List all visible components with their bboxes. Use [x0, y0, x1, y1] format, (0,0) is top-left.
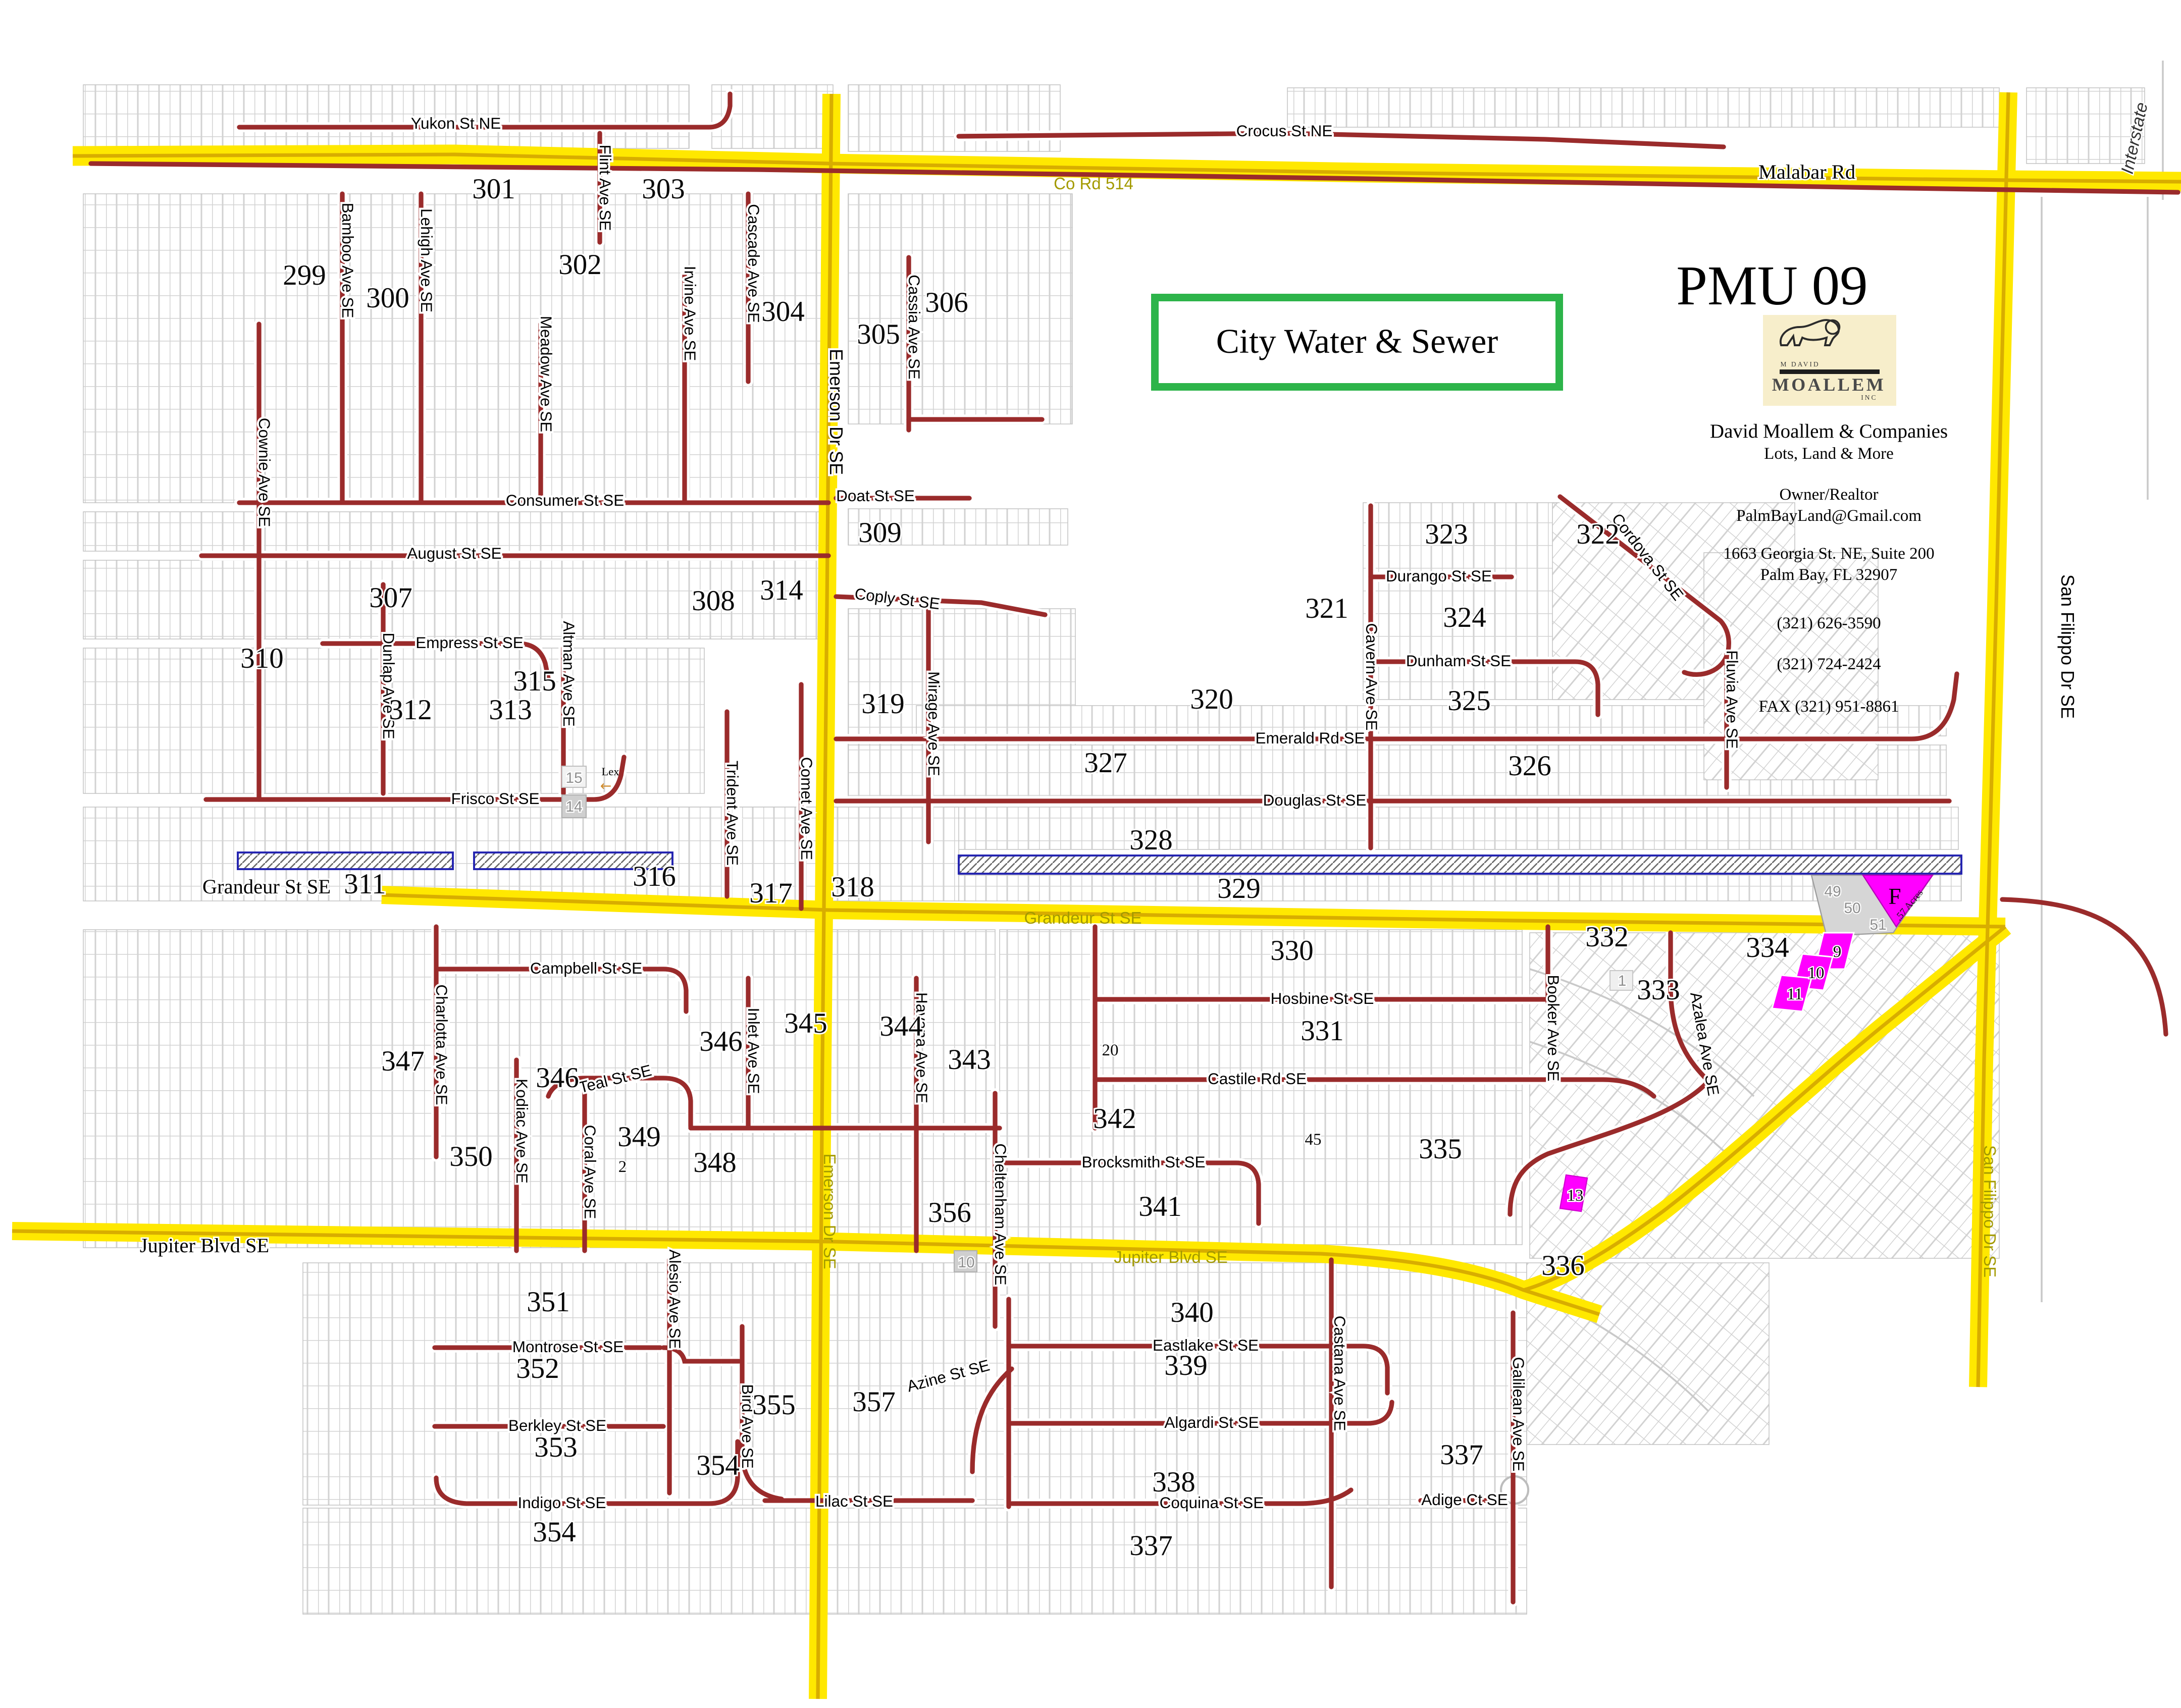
road-label-emerson: Emerson Dr SE [820, 1153, 839, 1269]
street-label-mirage: Mirage Ave SE [925, 671, 943, 776]
map-label: 49 [1824, 883, 1841, 900]
street-label-comet: Comet Ave SE [798, 757, 816, 860]
lex-arrow-icon: ← [600, 778, 612, 794]
section-number-339: 339 [1164, 1350, 1208, 1381]
road-label-malabar: Malabar Rd [1758, 161, 1855, 183]
section-number-332: 332 [1585, 921, 1629, 953]
street-label-cownie: Cownie Ave SE [255, 418, 274, 527]
company-tagline: Lots, Land & More [1666, 445, 1992, 463]
street-label-adige: Adige Ct SE [1421, 1490, 1508, 1509]
lion-icon [1762, 315, 1853, 354]
road-label-san-filippo: San Filippo Dr SE [1981, 1145, 1999, 1277]
section-number-311: 311 [344, 868, 386, 900]
section-number-328: 328 [1129, 824, 1173, 856]
section-number-356: 356 [928, 1197, 971, 1229]
street-label-charlotta: Charlotta Ave SE [433, 984, 451, 1105]
map-label: 10 [958, 1254, 974, 1271]
road-label-jupiter: Jupiter Blvd SE [1114, 1248, 1228, 1266]
street-label-doat: Doat St SE [836, 487, 915, 505]
city-water-sewer-banner: City Water & Sewer [1151, 294, 1563, 391]
street-label-hosbine: Hosbine St SE [1271, 989, 1374, 1007]
section-number-342: 342 [1093, 1103, 1136, 1135]
street-label-coral: Coral Ave SE [581, 1125, 599, 1219]
section-number-346: 346 [536, 1062, 579, 1094]
road-label-grandeur: Grandeur St SE [1024, 909, 1142, 927]
section-number-315: 315 [513, 665, 556, 697]
section-number-305: 305 [857, 318, 900, 350]
street-label-kodiac: Kodiac Ave SE [513, 1079, 531, 1184]
map-label: 2 [618, 1158, 627, 1176]
section-number-357: 357 [852, 1386, 896, 1418]
section-number-306: 306 [925, 287, 968, 318]
street-label-cassia: Cassia Ave SE [905, 275, 923, 380]
section-number-309: 309 [858, 517, 902, 549]
section-number-330: 330 [1270, 935, 1314, 967]
section-number-301: 301 [472, 173, 515, 205]
logo-sub-text: INC [1861, 394, 1877, 401]
street-label-havana: Havana Ave SE [913, 992, 931, 1103]
street-label-galilean: Galilean Ave SE [1510, 1357, 1528, 1471]
section-number-354: 354 [533, 1516, 576, 1548]
street-label-lilac: Lilac St SE [815, 1492, 893, 1510]
section-number-354: 354 [696, 1450, 740, 1481]
company-email: PalmBayLand@Gmail.com [1666, 507, 1992, 525]
section-number-321: 321 [1305, 593, 1348, 624]
street-label-indigo: Indigo St SE [517, 1493, 606, 1512]
section-number-338: 338 [1152, 1466, 1196, 1498]
section-number-353: 353 [534, 1431, 578, 1463]
street-label-cavern: Cavern Ave SE [1363, 623, 1381, 730]
section-number-300: 300 [366, 282, 409, 314]
street-label-alesio: Alesio Ave SE [666, 1249, 684, 1349]
street-label-emerald: Emerald Rd SE [1255, 729, 1365, 747]
section-number-352: 352 [516, 1353, 559, 1384]
section-number-344: 344 [879, 1010, 923, 1042]
margin-label-grandeur: Grandeur St SE [202, 875, 331, 898]
street-label-brocksmith: Brocksmith St SE [1081, 1153, 1205, 1171]
map-label: 1 [1618, 973, 1627, 989]
company-phone1: (321) 626-3590 [1666, 615, 1992, 633]
section-number-343: 343 [948, 1044, 991, 1076]
section-number-320: 320 [1190, 683, 1233, 715]
street-label-campbell: Campbell St SE [530, 959, 642, 977]
street-label-flint: Flint Ave SE [596, 144, 614, 231]
section-number-317: 317 [749, 877, 793, 909]
owner-realtor: Owner/Realtor [1666, 486, 1992, 504]
section-number-299: 299 [283, 259, 326, 291]
road-label-co-rd-514: Co Rd 514 [1054, 174, 1133, 193]
map-label: 15 [565, 770, 582, 786]
section-number-349: 349 [617, 1121, 661, 1153]
section-number-345: 345 [784, 1007, 827, 1039]
moallem-logo: M DAVID MOALLEM INC [1762, 315, 1896, 406]
section-number-316: 316 [633, 861, 676, 892]
street-label-meadow: Meadow Ave SE [537, 316, 555, 433]
street-label-san-filippo: San Filippo Dr SE [2057, 574, 2078, 719]
section-number-337: 337 [1440, 1439, 1483, 1471]
map-label: Lex [602, 765, 619, 778]
section-number-347: 347 [381, 1045, 425, 1077]
street-label-bamboo: Bamboo Ave SE [339, 203, 357, 318]
street-label-cheltenham: Cheltenham Ave SE [992, 1143, 1010, 1285]
company-card: M DAVID MOALLEM INC David Moallem & Comp… [1666, 315, 1992, 716]
street-label-castana: Castana Ave SE [1331, 1316, 1349, 1431]
section-number-312: 312 [389, 694, 432, 726]
section-number-329: 329 [1217, 873, 1261, 904]
logo-top-text: M DAVID [1781, 360, 1820, 368]
company-phone2: (321) 724-2424 [1666, 656, 1992, 674]
section-number-351: 351 [527, 1286, 570, 1318]
street-label-empress: Empress St SE [416, 633, 524, 652]
parcel-label-13: 13 [1567, 1187, 1584, 1205]
company-name: David Moallem & Companies [1666, 419, 1992, 444]
street-label-algardi: Algardi St SE [1164, 1413, 1259, 1431]
parcel-label-10: 10 [1808, 964, 1825, 982]
page-title: PMU 09 [1575, 254, 1969, 319]
section-number-314: 314 [760, 574, 803, 606]
map-label: 45 [1305, 1131, 1322, 1149]
section-number-333: 333 [1637, 974, 1680, 1006]
street-label-douglas: Douglas St SE [1263, 791, 1367, 809]
street-label-altman: Altman Ave SE [560, 621, 578, 727]
company-fax: FAX (321) 951-8861 [1666, 698, 1992, 716]
street-label-crocus: Crocus St NE [1236, 122, 1333, 140]
section-number-346: 346 [699, 1026, 743, 1057]
section-number-326: 326 [1508, 750, 1551, 782]
logo-bar [1779, 369, 1879, 374]
section-number-341: 341 [1138, 1191, 1182, 1222]
company-address-line1: 1663 Georgia St. NE, Suite 200 [1666, 545, 1992, 563]
section-number-307: 307 [369, 582, 412, 614]
map-label: 20 [1102, 1041, 1119, 1059]
street-label-durango: Durango St SE [1386, 567, 1492, 585]
section-number-350: 350 [449, 1141, 493, 1172]
map-label: 50 [1844, 900, 1860, 917]
section-number-340: 340 [1170, 1297, 1214, 1328]
section-number-335: 335 [1419, 1133, 1462, 1165]
street-label-emerson: Emerson Dr SE [826, 349, 847, 475]
parcel-label-11: 11 [1787, 985, 1803, 1003]
map-label: 14 [565, 798, 582, 815]
street-label-frisco: Frisco St SE [451, 789, 539, 808]
street-label-trident: Trident Ave SE [723, 761, 742, 866]
section-number-331: 331 [1301, 1015, 1344, 1047]
section-number-337: 337 [1129, 1530, 1173, 1562]
street-label-cascade: Cascade Ave SE [745, 204, 763, 323]
street-label-booker: Booker Ave SE [1544, 975, 1563, 1081]
section-number-304: 304 [761, 296, 805, 328]
section-number-303: 303 [642, 173, 685, 205]
street-label-consumer: Consumer St SE [506, 491, 625, 509]
section-number-319: 319 [861, 688, 905, 720]
section-number-310: 310 [240, 643, 284, 674]
street-label-castile: Castile Rd SE [1208, 1070, 1307, 1088]
parcel-label-9: 9 [1833, 943, 1842, 961]
section-number-325: 325 [1447, 685, 1491, 717]
logo-main-text: MOALLEM [1772, 376, 1886, 394]
banner-text: City Water & Sewer [1216, 323, 1498, 362]
section-number-336: 336 [1541, 1250, 1585, 1282]
section-number-323: 323 [1425, 518, 1468, 550]
section-number-327: 327 [1084, 747, 1127, 779]
section-number-302: 302 [558, 249, 602, 281]
section-number-334: 334 [1746, 932, 1789, 964]
company-address-line2: Palm Bay, FL 32907 [1666, 566, 1992, 584]
section-number-318: 318 [831, 871, 874, 903]
street-label-yukon: Yukon St NE [411, 114, 501, 132]
section-number-324: 324 [1443, 602, 1486, 633]
parcel-label-F: F [1888, 884, 1901, 909]
margin-label-jupiter: Jupiter Blvd SE [140, 1234, 270, 1257]
map-page: Yukon St NECrocus St NEConsumer St SEDoa… [0, 0, 2181, 1708]
section-number-322: 322 [1576, 518, 1620, 550]
section-number-313: 313 [489, 694, 532, 726]
map-label: 51 [1870, 917, 1886, 933]
section-number-308: 308 [692, 585, 735, 617]
street-label-august: August St SE [407, 544, 501, 562]
section-number-348: 348 [693, 1147, 737, 1179]
street-label-inlet: Inlet Ave SE [745, 1007, 763, 1094]
street-label-irvine: Irvine Ave SE [681, 266, 699, 361]
section-number-355: 355 [752, 1389, 796, 1421]
street-label-dunham: Dunham St SE [1406, 652, 1511, 670]
street-label-lehigh: Lehigh Ave SE [418, 208, 436, 312]
